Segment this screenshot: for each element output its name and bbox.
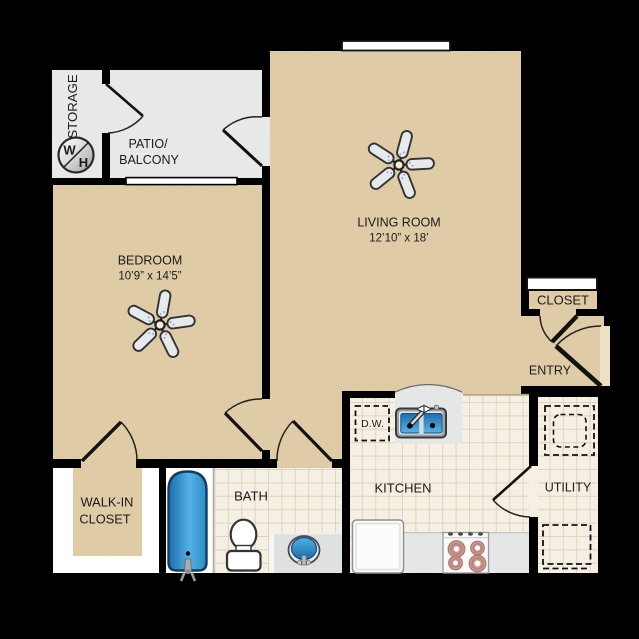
svg-text:BEDROOM: BEDROOM [118, 254, 183, 268]
svg-text:10’9” x 14’5”: 10’9” x 14’5” [118, 271, 181, 283]
svg-text:PATIO/: PATIO/ [128, 137, 168, 151]
svg-text:CLOSET: CLOSET [79, 512, 130, 527]
svg-text:WALK-IN: WALK-IN [81, 495, 134, 510]
svg-text:CLOSET: CLOSET [537, 293, 589, 308]
svg-text:H: H [79, 155, 88, 170]
svg-text:12’10” x 18’: 12’10” x 18’ [369, 233, 428, 245]
svg-text:BALCONY: BALCONY [119, 153, 179, 167]
svg-text:W: W [63, 143, 76, 158]
svg-text:STORAGE: STORAGE [65, 74, 80, 138]
svg-text:ENTRY: ENTRY [529, 364, 572, 378]
svg-text:D.W.: D.W. [361, 418, 384, 430]
svg-text:UTILITY: UTILITY [545, 481, 592, 495]
svg-text:LIVING ROOM: LIVING ROOM [357, 216, 440, 230]
svg-text:BATH: BATH [234, 489, 268, 504]
svg-text:KITCHEN: KITCHEN [374, 481, 431, 496]
